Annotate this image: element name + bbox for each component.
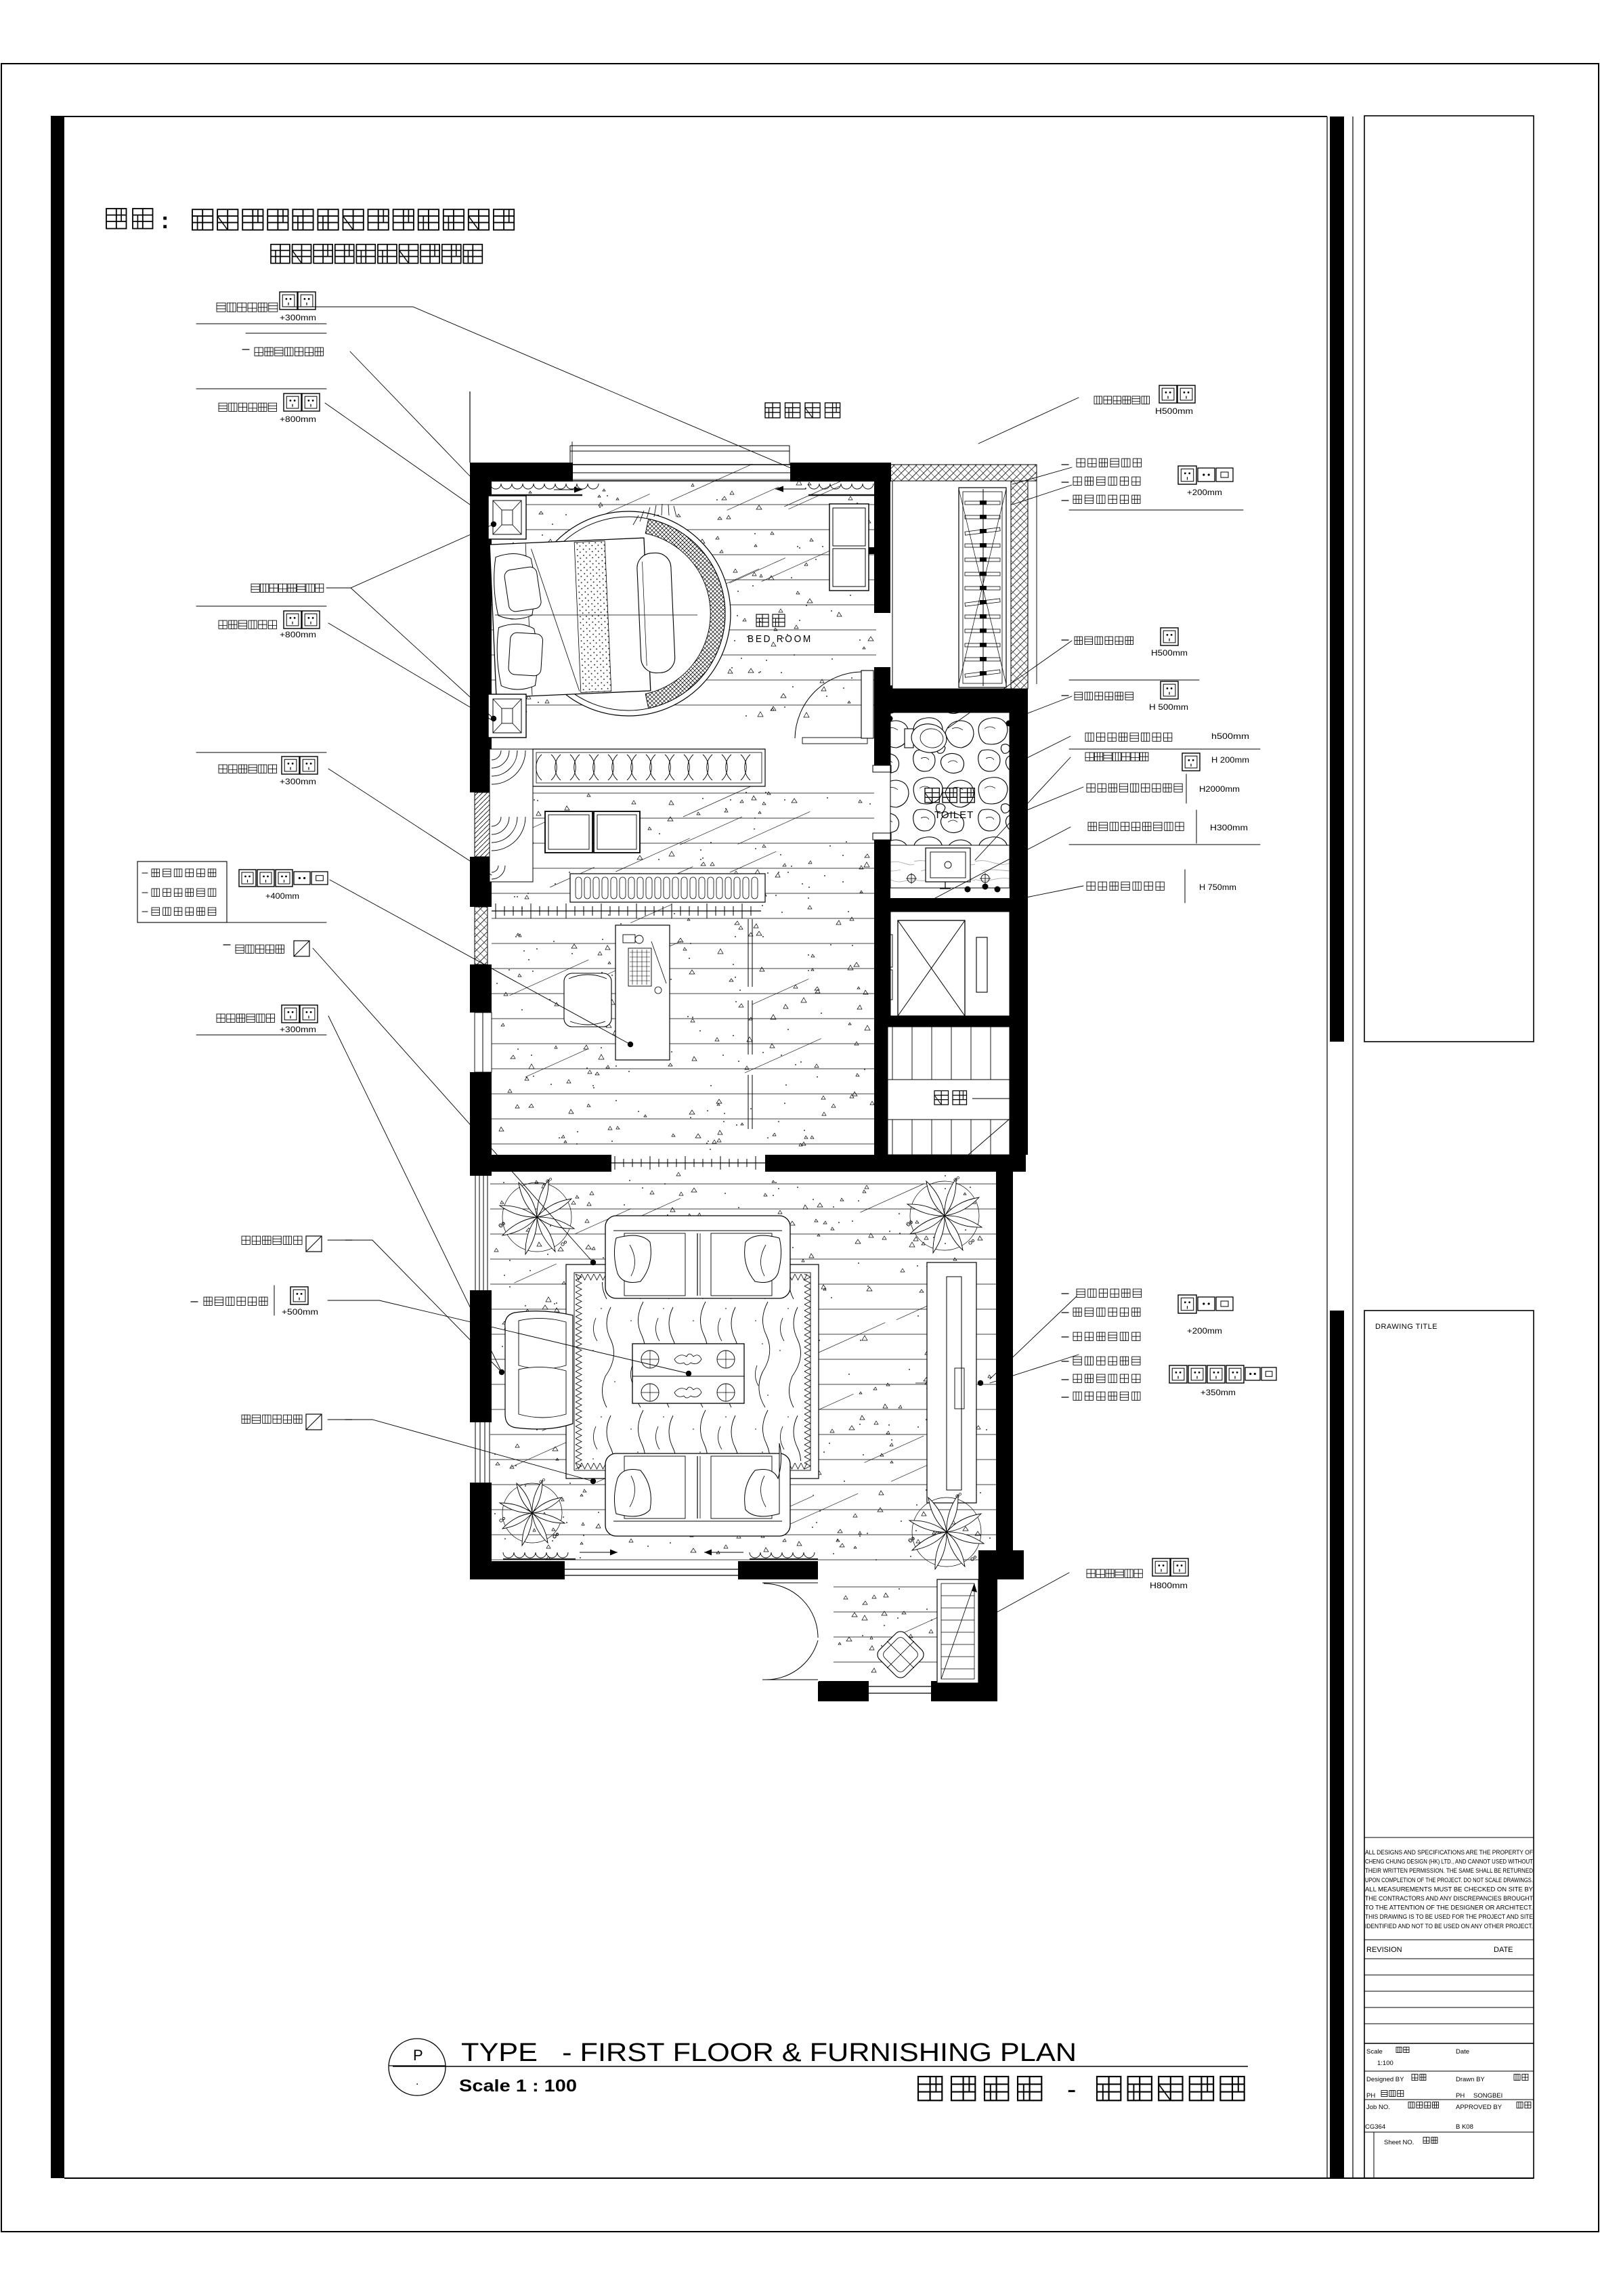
svg-text:Scale 1 : 100: Scale 1 : 100: [459, 2077, 577, 2096]
svg-text:P: P: [413, 2047, 423, 2064]
svg-text:CG364: CG364: [1365, 2123, 1385, 2131]
svg-text:H500mm: H500mm: [1151, 648, 1188, 658]
svg-text:Drawn BY: Drawn BY: [1456, 2076, 1485, 2083]
svg-text:+500mm: +500mm: [282, 1307, 318, 1317]
svg-text:THIS DRAWING IS TO BE USED FOR: THIS DRAWING IS TO BE USED FOR THE PROJE…: [1365, 1913, 1533, 1921]
svg-text:Scale: Scale: [1366, 2048, 1383, 2056]
svg-text:THE CONTRACTORS AND ANY DISCRE: THE CONTRACTORS AND ANY DISCREPANCIES BR…: [1365, 1895, 1533, 1902]
svg-text:THEIR WRITTEN PERMISSION. THE: THEIR WRITTEN PERMISSION. THE SAME SHALL…: [1365, 1867, 1533, 1875]
svg-text:TO THE ATTENTION OF THE DESIGN: TO THE ATTENTION OF THE DESIGNER OR ARCH…: [1365, 1905, 1533, 1912]
svg-text:H2000mm: H2000mm: [1199, 784, 1240, 794]
svg-text:APPROVED BY: APPROVED BY: [1456, 2104, 1502, 2111]
svg-text:BED ROOM: BED ROOM: [748, 633, 813, 645]
svg-text:+800mm: +800mm: [280, 414, 316, 424]
svg-text:H800mm: H800mm: [1150, 1581, 1188, 1590]
svg-text:PH: PH: [1366, 2092, 1375, 2100]
svg-text:TYPE - FIRST FLOOR & FURNISH: TYPE - FIRST FLOOR & FURNISHING PLAN: [461, 2039, 1077, 2067]
svg-text:UPON COMPLETION OF THE PROJECT: UPON COMPLETION OF THE PROJECT. DO NOT S…: [1365, 1877, 1533, 1884]
svg-text:1:100: 1:100: [1377, 2060, 1393, 2067]
svg-text:+200mm: +200mm: [1187, 1326, 1222, 1336]
svg-text:H300mm: H300mm: [1210, 823, 1248, 832]
svg-text:DATE: DATE: [1494, 1946, 1513, 1954]
svg-text:Sheet NO.: Sheet NO.: [1384, 2139, 1414, 2146]
svg-text:Designed BY: Designed BY: [1366, 2076, 1404, 2083]
svg-text:+800mm: +800mm: [280, 630, 316, 639]
svg-text:REVISION: REVISION: [1366, 1946, 1402, 1954]
svg-text:+350mm: +350mm: [1201, 1388, 1236, 1397]
svg-text:+300mm: +300mm: [280, 313, 316, 322]
svg-text:IDENTIFIED AND NOT TO BE USED: IDENTIFIED AND NOT TO BE USED ON ANY OTH…: [1365, 1923, 1533, 1930]
svg-text:H 200mm: H 200mm: [1211, 755, 1249, 765]
svg-text:H500mm: H500mm: [1155, 406, 1193, 416]
svg-text:CHENG CHUNG DESIGN (HK) LTD.,: CHENG CHUNG DESIGN (HK) LTD., AND CANNOT…: [1365, 1858, 1533, 1866]
svg-text:B K08: B K08: [1456, 2123, 1473, 2131]
svg-text:Date: Date: [1456, 2048, 1469, 2056]
svg-text:H 750mm: H 750mm: [1199, 883, 1236, 892]
svg-text:.: .: [416, 2076, 418, 2087]
svg-text:+200mm: +200mm: [1187, 488, 1222, 497]
svg-text:h500mm: h500mm: [1211, 731, 1249, 741]
svg-text:SONGBEI: SONGBEI: [1473, 2092, 1502, 2100]
svg-text::: :: [161, 208, 169, 234]
svg-text:Job NO.: Job NO.: [1366, 2104, 1390, 2111]
svg-text:TOILET: TOILET: [934, 809, 974, 821]
svg-text:+300mm: +300mm: [280, 777, 316, 786]
svg-text:ALL MEASUREMENTS MUST BE CHECK: ALL MEASUREMENTS MUST BE CHECKED ON SITE…: [1365, 1886, 1534, 1893]
svg-text:-: -: [1067, 2075, 1076, 2104]
svg-text:+400mm: +400mm: [265, 891, 299, 901]
svg-text:ALL DESIGNS AND SPECIFICATIONS: ALL DESIGNS AND SPECIFICATIONS ARE THE P…: [1365, 1849, 1533, 1856]
svg-text:H 500mm: H 500mm: [1149, 702, 1188, 712]
svg-text:+300mm: +300mm: [280, 1025, 316, 1034]
svg-text:PH: PH: [1456, 2092, 1465, 2100]
svg-text:DRAWING TITLE: DRAWING TITLE: [1375, 1323, 1437, 1331]
